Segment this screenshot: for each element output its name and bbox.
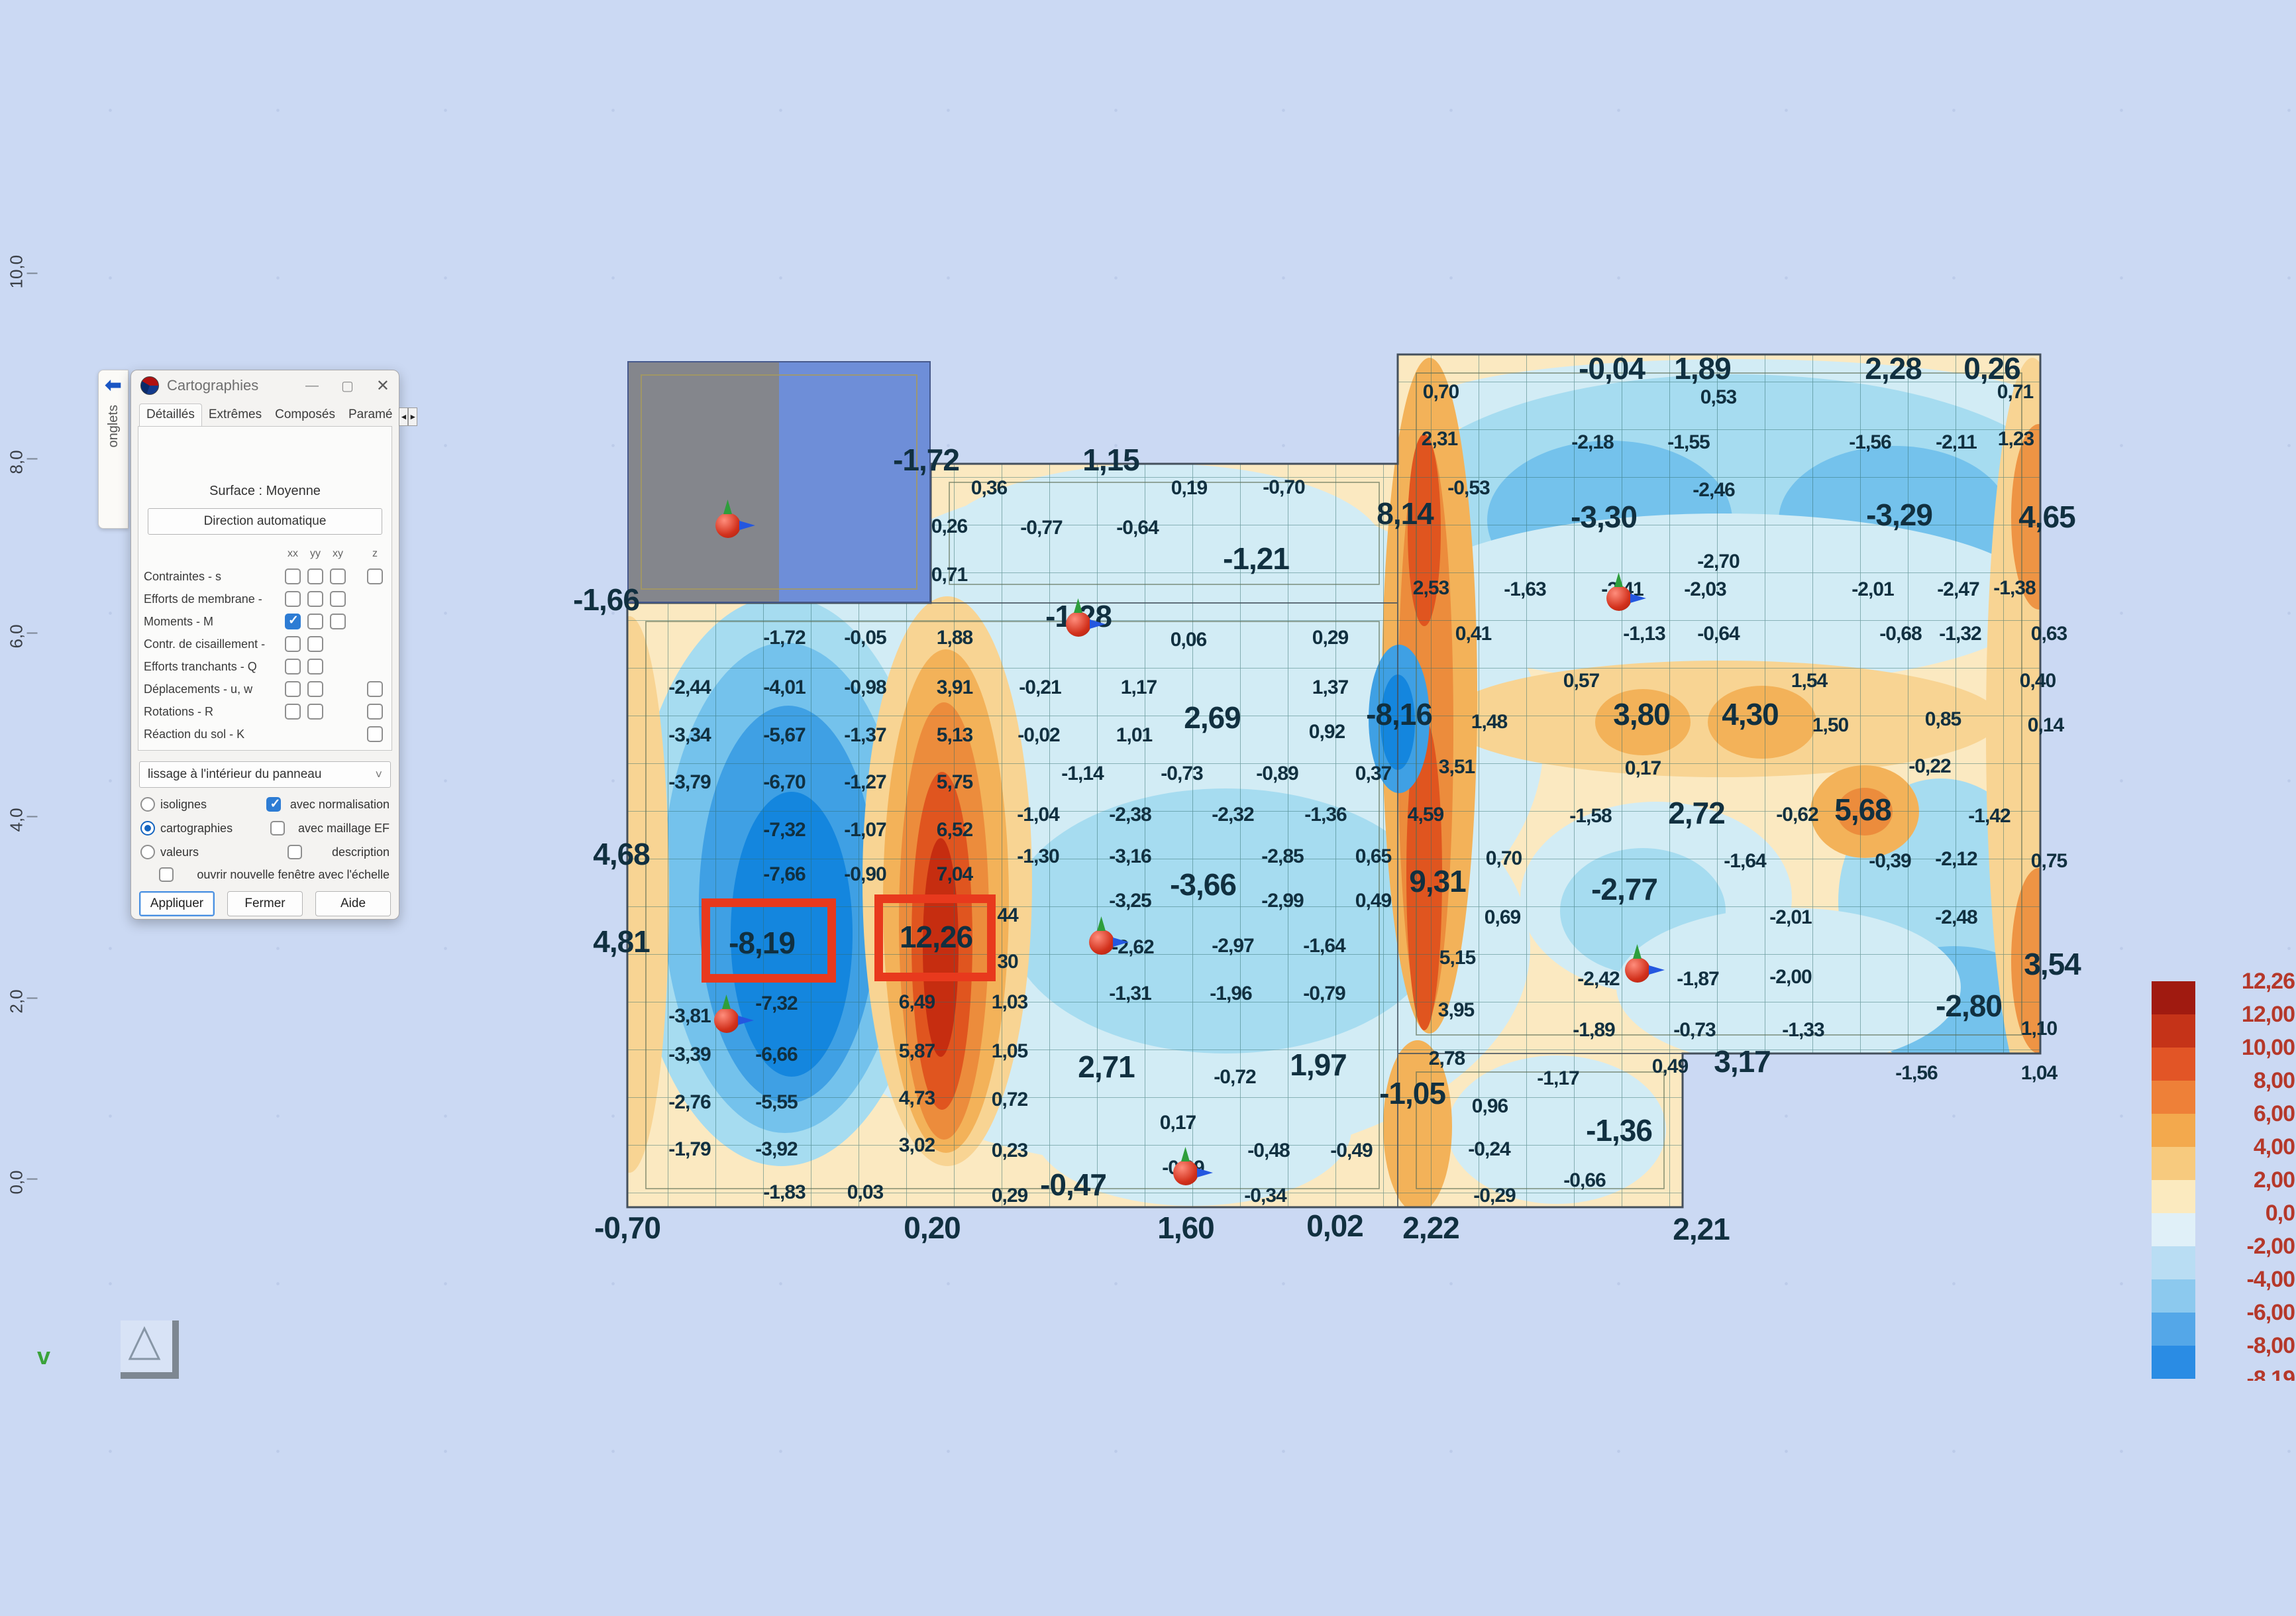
map-value-label: 30 (997, 951, 1018, 973)
map-value-label: 0,63 (2031, 623, 2067, 645)
map-value-label: -1,37 (844, 724, 886, 747)
support-node-marker[interactable] (715, 513, 741, 538)
map-value-label: -2,38 (1109, 804, 1151, 826)
map-value-label: -0,24 (1468, 1138, 1510, 1161)
map-value-label: -1,17 (1537, 1067, 1579, 1090)
map-value-label: 1,10 (2021, 1018, 2057, 1040)
matrix-row: Efforts tranchants - Q (144, 655, 386, 678)
map-value-label: -0,64 (1116, 517, 1158, 539)
dialog-buttons: AppliquerFermerAide (139, 891, 391, 916)
map-value-label: 3,91 (937, 676, 972, 699)
map-value-label: 3,02 (899, 1134, 935, 1157)
matrix-row-label: Déplacements - u, w (144, 682, 282, 696)
checkbox-xx[interactable] (285, 704, 301, 720)
ruler-tick-label: 6,0 (7, 629, 27, 649)
legend-value-label: -2,00 (2195, 1233, 2295, 1260)
map-value-label: -3,66 (1170, 867, 1236, 902)
checkbox-yy[interactable] (307, 636, 323, 652)
legend-value-label: 12,00 (2195, 1001, 2295, 1028)
close-button[interactable]: ✕ (376, 376, 390, 396)
map-value-label: -1,36 (1304, 804, 1346, 826)
matrix-row-label: Contr. de cisaillement - (144, 637, 282, 651)
check-option[interactable]: avec normalisation (263, 794, 390, 814)
support-node-marker[interactable] (714, 1008, 739, 1033)
detailed-tab-page: Surface : Moyenne Direction automatique … (138, 426, 392, 751)
map-value-label: 5,68 (1834, 792, 1891, 828)
dialog-title-bar[interactable]: Cartographies — ▢ ✕ (131, 370, 399, 401)
selected-panel-overlay[interactable] (627, 361, 931, 603)
map-value-label: -3,39 (668, 1044, 710, 1066)
map-value-label: -1,66 (573, 582, 639, 618)
map-value-label: -0,73 (1161, 763, 1202, 785)
map-value-label: -1,64 (1303, 935, 1345, 957)
checkbox-z[interactable] (367, 568, 383, 584)
panel-inset-border (641, 374, 917, 590)
map-value-label: 0,29 (1312, 627, 1348, 649)
checkbox-avec-normalisation[interactable] (266, 797, 281, 812)
tab-extrêmes[interactable]: Extrêmes (202, 404, 268, 426)
map-value-label: -3,25 (1109, 890, 1151, 912)
support-node-marker[interactable] (1173, 1160, 1198, 1185)
radio-cartographies[interactable] (140, 821, 155, 835)
tab-composés[interactable]: Composés (268, 404, 342, 426)
onglets-dock-tab[interactable]: ⬅ onglets (98, 370, 129, 529)
map-value-label: -3,30 (1571, 499, 1637, 535)
map-value-label: 0,49 (1652, 1055, 1688, 1078)
tab-détaillés[interactable]: Détaillés (139, 404, 202, 426)
map-value-label: -1,83 (763, 1181, 805, 1204)
maximize-button[interactable]: ▢ (341, 378, 354, 394)
map-value-label: 0,02 (1306, 1208, 1363, 1244)
map-value-label: -1,36 (1586, 1112, 1652, 1148)
new-window-checkbox[interactable] (159, 867, 174, 882)
map-value-label: 1,17 (1121, 676, 1157, 699)
map-value-label: -5,67 (763, 724, 805, 747)
map-value-label: -1,72 (893, 442, 959, 478)
map-value-label: -0,21 (1019, 676, 1061, 699)
map-value-label: -0,34 (1244, 1185, 1286, 1207)
map-value-label: -2,42 (1577, 968, 1619, 991)
map-value-label: 3,54 (2024, 946, 2081, 982)
cartographies-dialog: Cartographies — ▢ ✕ DétaillésExtrêmesCom… (130, 370, 399, 920)
legend-color-swatch (2152, 981, 2195, 1014)
map-value-label: -0,73 (1673, 1019, 1715, 1042)
legend-color-swatch (2152, 1313, 2195, 1346)
map-value-label: -1,07 (844, 819, 886, 841)
map-value-label: 0,26 (931, 515, 967, 538)
matrix-row: Déplacements - u, w (144, 678, 386, 700)
map-value-label: 2,31 (1422, 428, 1457, 451)
map-value-label: -1,14 (1061, 763, 1103, 785)
map-value-label: 0,71 (931, 564, 967, 586)
checkbox-xx[interactable] (285, 659, 301, 674)
map-value-label: -0,68 (1879, 623, 1921, 645)
map-value-label: 5,75 (937, 771, 972, 794)
map-value-label: 1,05 (992, 1040, 1027, 1063)
map-value-label: -0,29 (1473, 1185, 1515, 1207)
map-value-label: -0,89 (1256, 763, 1298, 785)
appliquer-button[interactable]: Appliquer (139, 891, 215, 916)
checkbox-yy[interactable] (307, 659, 323, 674)
map-value-label: -2,12 (1935, 848, 1977, 871)
map-value-label: -2,44 (668, 676, 710, 699)
map-value-label: 3,51 (1439, 756, 1475, 779)
direction-automatic-button[interactable]: Direction automatique (148, 508, 382, 535)
check-option[interactable]: avec maillage EF (263, 818, 390, 838)
map-value-label: 1,89 (1674, 350, 1731, 386)
legend-value-label: -8,19 (2195, 1366, 2295, 1381)
color-scale-legend: 12,2612,0010,008,006,004,002,000,0-2,00-… (2150, 973, 2296, 1381)
map-value-label: 0,20 (904, 1210, 961, 1246)
map-value-label: -3,92 (755, 1138, 797, 1161)
map-value-label: 0,70 (1486, 847, 1522, 870)
map-value-label: -1,21 (1223, 541, 1289, 576)
legend-color-swatch (2152, 1081, 2195, 1114)
map-value-label: 0,75 (2031, 850, 2067, 873)
map-value-label: -2,47 (1937, 578, 1979, 601)
map-value-label: -0,05 (844, 627, 886, 649)
map-value-label: -1,04 (1017, 804, 1059, 826)
map-value-label: 1,97 (1290, 1047, 1347, 1083)
map-value-label: -4,01 (763, 676, 805, 699)
map-value-label: 0,49 (1355, 890, 1391, 912)
checkbox-avec-maillage-EF[interactable] (270, 821, 285, 835)
map-value-label: 0,53 (1700, 386, 1736, 409)
map-value-label: -1,55 (1667, 431, 1709, 454)
map-value-label: 1,03 (992, 991, 1027, 1014)
surface-label: Surface : Moyenne (144, 484, 386, 499)
map-value-label: 5,87 (899, 1040, 935, 1063)
map-value-label: -0,62 (1776, 804, 1818, 826)
map-value-label: -2,01 (1852, 578, 1893, 601)
map-value-label: 0,69 (1485, 906, 1520, 929)
map-value-label: 1,23 (1998, 428, 2034, 451)
map-value-label: 0,19 (1171, 477, 1207, 500)
map-value-label: -0,79 (1303, 983, 1345, 1005)
legend-color-swatch (2152, 1014, 2195, 1048)
map-value-label: 1,60 (1157, 1210, 1214, 1246)
map-value-label: 1,48 (1471, 711, 1507, 733)
display-options: isolignesavec normalisationcartographies… (140, 794, 390, 862)
checkbox-xx[interactable] (285, 681, 301, 697)
map-value-label: 0,72 (992, 1089, 1027, 1111)
map-value-label: -1,89 (1573, 1019, 1614, 1042)
map-value-label: 1,15 (1082, 442, 1139, 478)
support-node-marker[interactable] (1066, 612, 1091, 637)
matrix-header-xy: xy (327, 548, 349, 560)
aide-button[interactable]: Aide (315, 891, 391, 916)
map-value-label: 7,04 (937, 863, 972, 886)
dialog-title: Cartographies (167, 377, 258, 394)
ruler-tick-label: 0,0 (7, 1175, 27, 1195)
map-value-label: -2,46 (1693, 479, 1734, 502)
map-value-label: 2,21 (1673, 1211, 1730, 1247)
legend-value-label: 4,00 (2195, 1134, 2295, 1160)
ruler-tick-label: 8,0 (7, 455, 27, 474)
map-value-label: -2,85 (1261, 845, 1303, 868)
map-value-label: -1,05 (1379, 1075, 1445, 1111)
map-value-label: -1,64 (1724, 850, 1765, 873)
map-value-label: -0,98 (844, 676, 886, 699)
map-value-label: -8,16 (1366, 696, 1432, 732)
map-value-label: 3,17 (1714, 1044, 1771, 1079)
map-value-label: -3,16 (1109, 845, 1151, 868)
radio-valeurs[interactable] (140, 845, 155, 859)
matrix-row: Rotations - R (144, 700, 386, 723)
map-value-label: 1,54 (1791, 670, 1827, 692)
map-value-label: 1,88 (937, 627, 972, 649)
open-new-window-option[interactable]: ouvrir nouvelle fenêtre avec l'échelle (140, 867, 390, 882)
map-value-label: -2,99 (1261, 890, 1303, 912)
map-value-label: -0,48 (1247, 1140, 1289, 1162)
checkbox-yy[interactable] (307, 681, 323, 697)
smoothing-select-value: lissage à l'intérieur du panneau (148, 767, 321, 782)
radio-option[interactable]: valeurs (140, 842, 263, 862)
highlight-box (702, 898, 836, 983)
radio-label: isolignes (160, 798, 207, 812)
ruler-tick-label: 2,0 (7, 994, 27, 1014)
support-node-marker[interactable] (1625, 957, 1650, 983)
checkbox-xx[interactable] (285, 568, 301, 584)
checkbox-yy[interactable] (307, 568, 323, 584)
map-value-label: 2,78 (1429, 1048, 1465, 1070)
checkbox-xx[interactable] (285, 614, 301, 629)
matrix-row: Réaction du sol - K (144, 723, 386, 745)
checkbox-label: avec maillage EF (298, 822, 390, 835)
map-value-label: 0,37 (1355, 763, 1391, 785)
legend-value-label: -8,00 (2195, 1332, 2295, 1359)
legend-color-swatch (2152, 1279, 2195, 1313)
map-value-label: -3,29 (1866, 497, 1932, 533)
map-value-label: -5,55 (755, 1091, 797, 1114)
radio-label: valeurs (160, 845, 199, 859)
arrow-left-icon[interactable]: ⬅ (105, 376, 121, 396)
minimize-button[interactable]: — (305, 378, 319, 394)
map-value-label: 6,49 (899, 991, 935, 1014)
map-value-label: -0,39 (1869, 850, 1910, 873)
map-value-label: -2,32 (1212, 804, 1253, 826)
checkbox-description[interactable] (287, 845, 302, 859)
map-value-label: -0,47 (1040, 1167, 1106, 1203)
map-value-label: 2,72 (1668, 795, 1725, 831)
legend-value-label: -4,00 (2195, 1266, 2295, 1293)
map-value-label: 0,23 (992, 1140, 1027, 1162)
legend-value-label: 6,00 (2195, 1101, 2295, 1127)
map-value-label: 0,96 (1472, 1095, 1508, 1118)
checkbox-xx[interactable] (285, 636, 301, 652)
map-value-label: 5,13 (937, 724, 972, 747)
map-value-label: -1,30 (1017, 845, 1059, 868)
map-value-label: 2,53 (1413, 577, 1449, 600)
matrix-row-label: Moments - M (144, 615, 282, 629)
map-value-label: -1,32 (1939, 623, 1981, 645)
map-value-label: -2,77 (1591, 871, 1657, 907)
map-value-label: -2,03 (1684, 578, 1726, 601)
map-value-label: 9,31 (1409, 863, 1466, 899)
matrix-row-label: Efforts tranchants - Q (144, 660, 282, 674)
map-value-label: -1,87 (1677, 968, 1718, 991)
map-value-label: 0,41 (1455, 623, 1491, 645)
map-value-label: -0,70 (1263, 476, 1304, 499)
axis-v-label: v (37, 1342, 50, 1370)
map-value-label: -1,58 (1569, 805, 1611, 828)
map-value-label: 1,01 (1116, 724, 1152, 747)
check-option[interactable]: description (263, 842, 390, 862)
matrix-header-row: xxyyxyz (144, 543, 386, 565)
map-value-label: -1,56 (1849, 431, 1891, 454)
map-value-label: 2,71 (1078, 1049, 1135, 1085)
map-value-label: 2,69 (1184, 700, 1241, 735)
map-value-label: 0,92 (1309, 721, 1345, 743)
checkbox-z[interactable] (367, 726, 383, 742)
legend-value-label: 12,26 (2195, 973, 2295, 995)
checkbox-label: avec normalisation (290, 798, 390, 812)
checkbox-xy[interactable] (330, 568, 346, 584)
smoothing-select[interactable]: lissage à l'intérieur du panneau ˅ (139, 761, 391, 788)
map-value-label: 4,30 (1722, 696, 1779, 732)
support-node-marker[interactable] (1606, 586, 1632, 611)
map-value-label: -3,81 (668, 1005, 710, 1028)
radio-label: cartographies (160, 822, 233, 835)
matrix-header-xx: xx (282, 548, 304, 560)
matrix-row: Contraintes - s (144, 565, 386, 588)
map-value-label: -1,56 (1895, 1062, 1937, 1085)
map-value-label: -2,48 (1935, 906, 1977, 929)
legend-color-swatch (2152, 1180, 2195, 1213)
matrix-row: Efforts de membrane - (144, 588, 386, 610)
map-value-label: 44 (997, 904, 1018, 927)
checkbox-z[interactable] (367, 704, 383, 720)
map-value-label: 4,68 (593, 836, 650, 872)
highlight-box (874, 894, 996, 981)
map-value-label: -0,66 (1563, 1169, 1605, 1192)
matrix-row-label: Réaction du sol - K (144, 727, 282, 741)
map-value-label: 1,37 (1312, 676, 1348, 699)
map-value-label: 4,81 (593, 924, 650, 959)
map-value-label: 2,28 (1865, 350, 1922, 386)
map-value-label: -2,76 (668, 1091, 710, 1114)
map-value-label: -0,02 (1018, 724, 1059, 747)
map-value-label: 1,50 (1812, 714, 1848, 737)
map-value-label: -2,18 (1571, 431, 1613, 454)
map-value-label: -0,72 (1214, 1066, 1255, 1089)
map-value-label: -7,32 (755, 993, 797, 1015)
legend-color-swatch (2152, 1048, 2195, 1081)
matrix-row-label: Rotations - R (144, 705, 282, 719)
map-value-label: -0,77 (1020, 517, 1062, 539)
map-value-label: 0,57 (1563, 670, 1599, 692)
tab-paramé[interactable]: Paramé (342, 404, 399, 426)
legend-value-label: 0,0 (2195, 1200, 2295, 1226)
map-value-label: -0,64 (1697, 623, 1739, 645)
result-component-matrix: xxyyxyzContraintes - sEfforts de membran… (144, 543, 386, 745)
checkbox-xy[interactable] (330, 591, 346, 607)
map-value-label: 0,70 (1423, 381, 1459, 404)
map-value-label: -2,97 (1212, 935, 1253, 957)
legend-color-swatch (2152, 1213, 2195, 1246)
map-value-label: 3,80 (1613, 696, 1670, 732)
matrix-row: Moments - M (144, 610, 386, 633)
map-value-label: -1,13 (1623, 623, 1665, 645)
map-value-label: -1,33 (1782, 1019, 1824, 1042)
map-value-label: -1,72 (763, 627, 805, 649)
fermer-button[interactable]: Fermer (227, 891, 303, 916)
checkbox-z[interactable] (367, 681, 383, 697)
map-value-label: -2,00 (1769, 966, 1811, 989)
map-value-label: -6,66 (755, 1044, 797, 1066)
map-value-label: -3,34 (668, 724, 710, 747)
map-value-label: -1,31 (1109, 983, 1151, 1005)
map-value-label: -6,70 (763, 771, 805, 794)
ruler-tick-label: 4,0 (7, 812, 27, 832)
support-node-marker[interactable] (1089, 930, 1114, 955)
checkbox-yy[interactable] (307, 614, 323, 629)
map-value-label: 0,06 (1171, 629, 1206, 651)
chevron-down-icon: ˅ (375, 768, 382, 782)
map-value-label: -7,66 (763, 863, 805, 886)
map-value-label: -1,79 (668, 1138, 710, 1161)
map-value-label: -2,01 (1769, 906, 1811, 929)
radio-isolignes[interactable] (140, 797, 155, 812)
radio-option[interactable]: cartographies (140, 818, 263, 838)
map-value-label: 4,73 (899, 1087, 935, 1110)
checkbox-xx[interactable] (285, 591, 301, 607)
map-value-label: 0,65 (1355, 845, 1391, 868)
new-window-label: ouvrir nouvelle fenêtre avec l'échelle (197, 868, 390, 882)
map-value-label: -1,63 (1504, 578, 1545, 601)
checkbox-yy[interactable] (307, 704, 323, 720)
map-value-label: -0,53 (1447, 477, 1489, 500)
map-value-label: 8,14 (1377, 496, 1434, 531)
map-value-label: -0,90 (844, 863, 886, 886)
map-value-label: 0,03 (847, 1181, 883, 1204)
map-value-label: -0,70 (594, 1210, 660, 1246)
legend-color-swatch (2152, 1346, 2195, 1379)
map-value-label: 0,17 (1160, 1112, 1196, 1134)
tab-scroll-right-button[interactable]: ► (408, 407, 417, 426)
map-value-label: -2,80 (1936, 988, 2002, 1024)
map-value-label: 5,15 (1439, 947, 1475, 969)
view-orientation-icon[interactable] (121, 1320, 179, 1379)
map-value-label: -1,96 (1210, 983, 1251, 1005)
map-value-label: 0,71 (1997, 381, 2033, 404)
map-value-label: 4,59 (1408, 804, 1443, 826)
legend-value-label: 8,00 (2195, 1067, 2295, 1094)
matrix-row: Contr. de cisaillement - (144, 633, 386, 655)
map-value-label: 0,14 (2028, 714, 2063, 737)
ruler-tick-label: 10,0 (7, 269, 27, 289)
checkbox-yy[interactable] (307, 591, 323, 607)
map-value-label: 1,04 (2021, 1062, 2057, 1085)
map-value-label: 4,65 (2018, 499, 2075, 535)
dialog-tab-strip: DétaillésExtrêmesComposésParamé◄► (131, 401, 399, 426)
map-value-label: 0,29 (992, 1185, 1027, 1207)
tab-scroll-left-button[interactable]: ◄ (399, 407, 408, 426)
checkbox-xy[interactable] (330, 614, 346, 629)
map-value-label: -7,32 (763, 819, 805, 841)
map-value-label: 0,40 (2020, 670, 2056, 692)
map-value-label: -1,27 (844, 771, 886, 794)
map-value-label: 0,85 (1925, 708, 1961, 731)
map-value-label: -0,04 (1579, 350, 1645, 386)
viewport: -1,66-1,721,150,360,19-0,700,26-0,77-0,6… (0, 0, 2296, 1616)
radio-option[interactable]: isolignes (140, 794, 263, 814)
matrix-header-yy: yy (304, 548, 327, 560)
matrix-row-label: Efforts de membrane - (144, 592, 282, 606)
checkbox-label: description (332, 845, 390, 859)
map-value-label: -3,79 (668, 771, 710, 794)
map-value-label: -1,42 (1968, 805, 2010, 828)
